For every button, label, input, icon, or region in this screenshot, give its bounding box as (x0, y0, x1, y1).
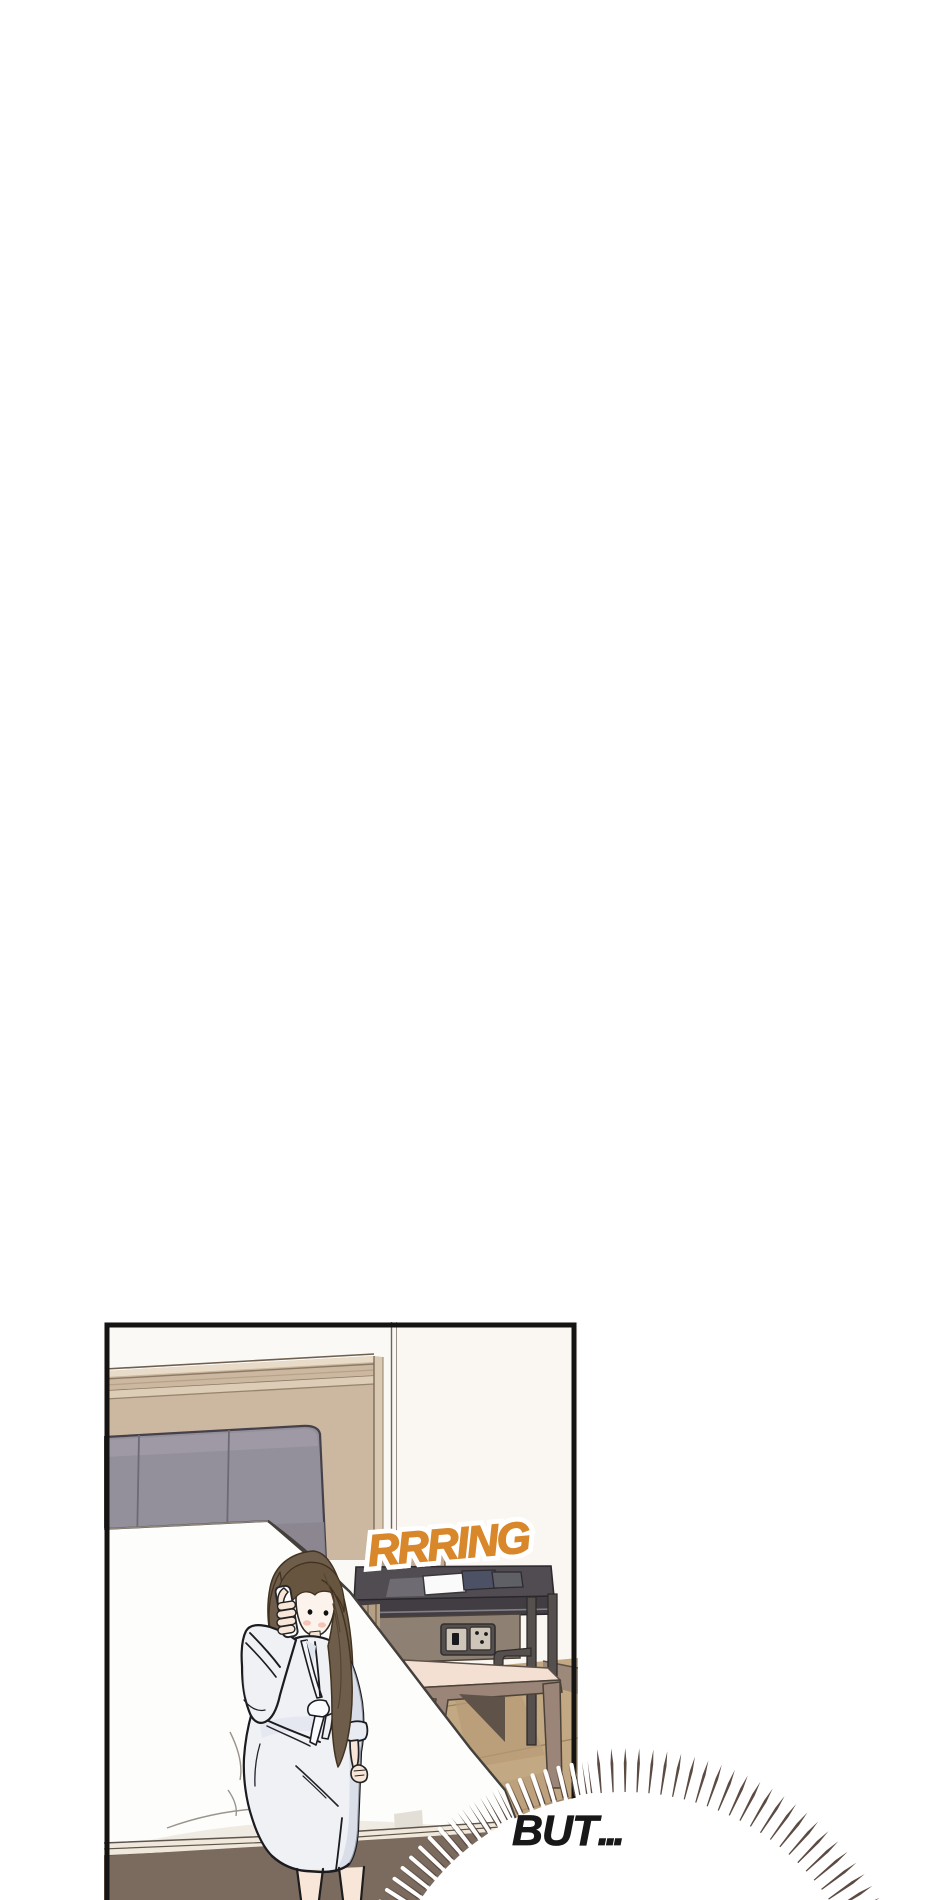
svg-text:BUT...: BUT... (512, 1807, 622, 1855)
